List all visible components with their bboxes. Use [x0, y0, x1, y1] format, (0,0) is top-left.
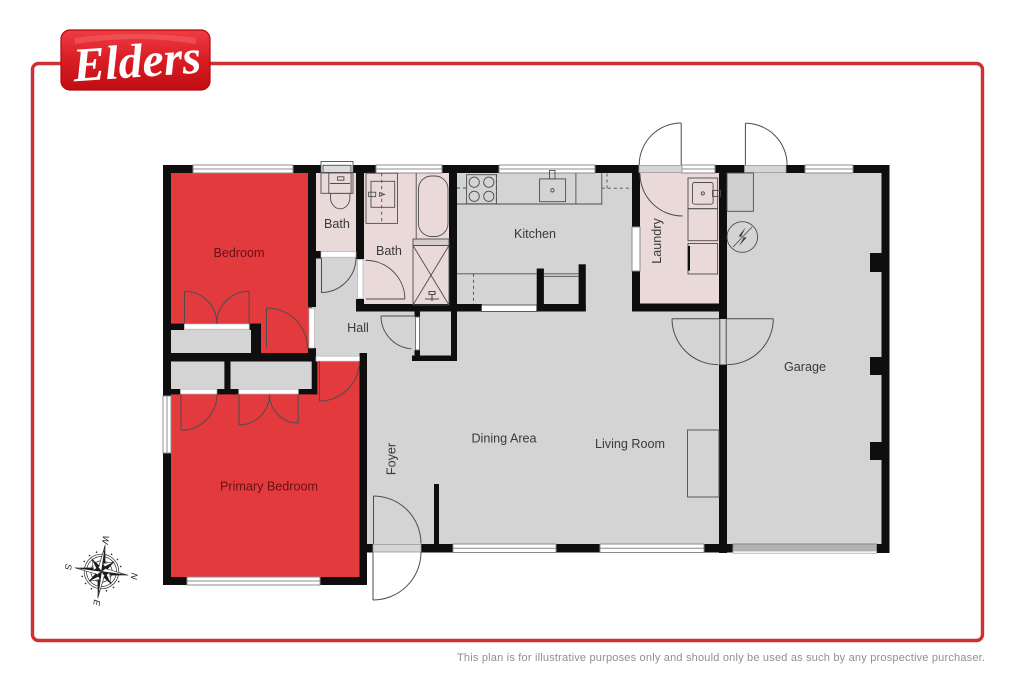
- svg-text:Elders: Elders: [70, 31, 202, 93]
- svg-text:Laundry: Laundry: [650, 218, 664, 264]
- svg-text:N: N: [129, 572, 140, 580]
- svg-text:S: S: [63, 563, 74, 570]
- svg-text:E: E: [91, 599, 102, 607]
- svg-text:W: W: [100, 535, 111, 546]
- svg-text:Living Room: Living Room: [595, 437, 665, 451]
- svg-text:Primary Bedroom: Primary Bedroom: [220, 480, 318, 494]
- svg-text:This plan is for illustrative: This plan is for illustrative purposes o…: [457, 652, 985, 664]
- svg-text:Dining Area: Dining Area: [471, 432, 536, 446]
- svg-text:Bath: Bath: [376, 244, 402, 258]
- svg-text:Foyer: Foyer: [385, 443, 399, 475]
- svg-text:Kitchen: Kitchen: [514, 227, 556, 241]
- svg-text:Garage: Garage: [784, 360, 826, 374]
- svg-text:Hall: Hall: [347, 321, 369, 335]
- svg-text:Bedroom: Bedroom: [213, 246, 264, 260]
- svg-text:Bath: Bath: [324, 217, 350, 231]
